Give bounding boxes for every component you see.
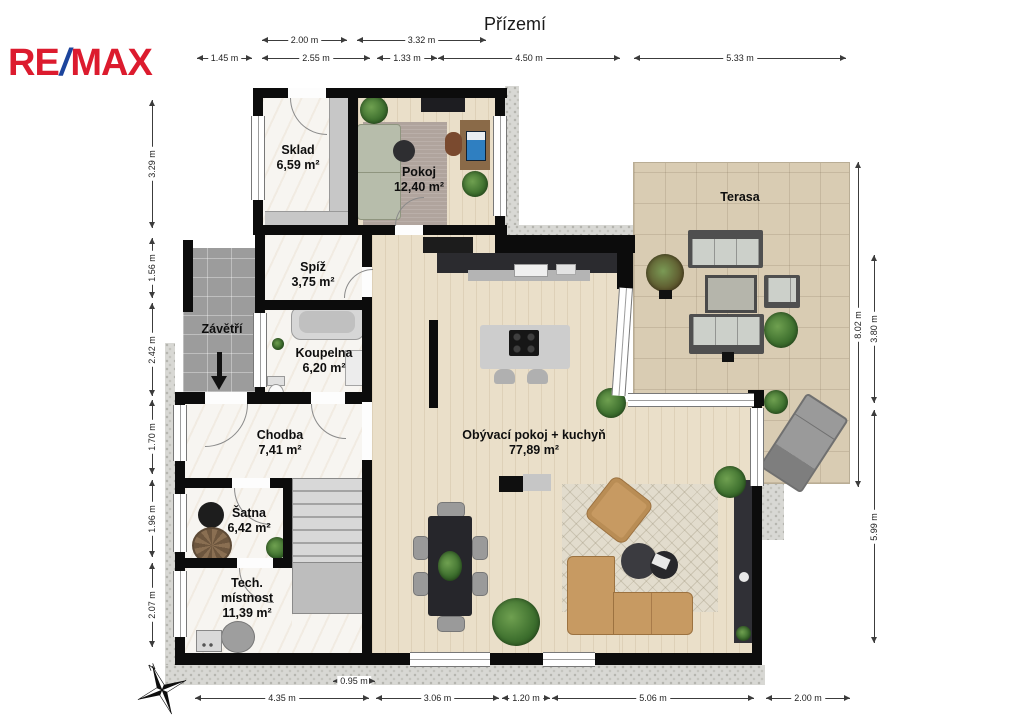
window xyxy=(410,652,490,667)
wall-segment xyxy=(247,392,311,404)
dining-chair xyxy=(437,616,465,632)
staircase xyxy=(292,478,364,564)
wall-segment xyxy=(362,235,372,267)
plant xyxy=(462,171,488,197)
wall-segment xyxy=(595,653,762,665)
plant xyxy=(764,390,788,414)
logo-max: MAX xyxy=(70,42,151,84)
wall-segment xyxy=(263,300,372,310)
dimension: 1.45 m xyxy=(197,52,252,64)
kitchen-tall-cabinet xyxy=(423,237,473,253)
washing-machine xyxy=(196,630,222,652)
dining-chair xyxy=(413,572,429,596)
floor-under-stairs xyxy=(292,612,362,653)
wall-segment xyxy=(617,253,633,289)
wall-segment xyxy=(253,88,288,98)
dimension: 1.96 m xyxy=(146,480,158,557)
outdoor-coffee-table xyxy=(705,275,757,313)
window-glass-wall xyxy=(628,393,754,407)
tv-cabinet xyxy=(421,96,465,112)
window xyxy=(173,494,187,552)
bar-stool xyxy=(494,369,515,384)
dimension: 5.99 m xyxy=(868,410,880,643)
plant xyxy=(438,551,462,581)
dimension: 1.56 m xyxy=(146,238,158,298)
entrance-arrow-icon xyxy=(217,352,222,376)
kitchen-sink xyxy=(514,264,548,277)
wall-segment xyxy=(183,240,193,312)
wall-segment xyxy=(495,235,635,253)
dimension: 8.02 m xyxy=(852,162,864,487)
window xyxy=(173,571,187,637)
bathtub-basin xyxy=(299,311,355,333)
dimension: 2.00 m xyxy=(262,34,347,46)
wall-segment xyxy=(348,98,358,225)
office-chair xyxy=(445,132,462,156)
outdoor-armchair xyxy=(764,275,800,308)
room-label-sklad: Sklad6,59 m² xyxy=(276,143,319,173)
shelving xyxy=(329,98,349,215)
logo-re: RE xyxy=(8,42,59,84)
gravel-strip xyxy=(507,225,635,235)
sofa-chaise xyxy=(567,556,615,635)
door-opening xyxy=(395,225,423,235)
pouf xyxy=(198,502,224,528)
plant xyxy=(360,96,388,124)
door-opening xyxy=(232,478,270,488)
door-opening xyxy=(288,88,326,98)
window xyxy=(543,652,595,667)
tv-media-wall xyxy=(734,480,754,643)
dimension: 3.06 m xyxy=(376,692,499,704)
dimension: 2.00 m xyxy=(766,692,850,704)
room-label-tech-mistnost: Tech. místnost11,39 m² xyxy=(208,576,286,621)
gravel-strip xyxy=(165,665,765,685)
room-label-koupelna: Koupelna6,20 m² xyxy=(296,346,353,376)
room-label-chodba: Chodba7,41 m² xyxy=(257,428,304,458)
wall-segment xyxy=(175,478,232,488)
room-label-spiz: Spíž3,75 m² xyxy=(291,260,334,290)
dimension: 5.06 m xyxy=(552,692,754,704)
wood-storage xyxy=(523,474,551,491)
dimension: 1.70 m xyxy=(146,400,158,474)
wall-segment xyxy=(362,297,372,402)
bar-stool xyxy=(527,369,548,384)
tree-pot xyxy=(659,290,672,299)
door-opening xyxy=(237,558,273,568)
plant xyxy=(764,312,798,348)
plant xyxy=(272,338,284,350)
remax-logo: RE/MAX xyxy=(8,44,152,82)
wall-segment xyxy=(175,653,410,665)
dimension: 2.07 m xyxy=(146,563,158,647)
dining-chair xyxy=(472,572,488,596)
gravel-strip xyxy=(505,86,519,235)
outdoor-sofa xyxy=(688,230,763,268)
room-opening xyxy=(362,402,372,460)
plant xyxy=(492,598,540,646)
plant xyxy=(714,466,746,498)
wall-segment xyxy=(253,225,395,235)
cooktop xyxy=(509,330,539,356)
cutting-board xyxy=(556,264,576,275)
door-opening xyxy=(311,392,345,404)
terrace-tree xyxy=(646,254,684,292)
dimension: 0.95 m xyxy=(333,675,375,687)
fireplace-stove xyxy=(499,476,523,492)
room-label-satna: Šatna6,42 m² xyxy=(227,506,270,536)
dining-chair xyxy=(413,536,429,560)
dimension: 2.42 m xyxy=(146,303,158,396)
dimension: 3.32 m xyxy=(357,34,486,46)
door-opening xyxy=(205,392,247,404)
window xyxy=(251,116,265,200)
dimension: 4.35 m xyxy=(195,692,369,704)
room-label-pokoj: Pokoj12,40 m² xyxy=(394,165,444,195)
wall-segment xyxy=(326,88,507,98)
wall-stub xyxy=(429,320,438,408)
dimension: 1.20 m xyxy=(502,692,550,704)
wall-segment xyxy=(490,653,543,665)
dimension: 1.33 m xyxy=(377,52,437,64)
window xyxy=(493,116,507,216)
boiler xyxy=(221,621,255,653)
plant xyxy=(736,626,751,641)
dimension: 3.80 m xyxy=(868,255,880,403)
wall-segment xyxy=(423,225,507,235)
staircase-landing xyxy=(292,562,364,614)
side-table xyxy=(393,140,415,162)
dimension: 5.33 m xyxy=(634,52,846,64)
dimension: 3.29 m xyxy=(146,100,158,228)
logo-slash: / xyxy=(59,42,71,84)
planter-pot xyxy=(722,352,734,362)
wall-segment xyxy=(273,558,292,568)
room-label-obyvaci-pokoj: Obývací pokoj + kuchyň77,89 m² xyxy=(462,428,605,458)
entrance-arrow-icon xyxy=(211,376,227,390)
wall-segment xyxy=(362,460,372,663)
tv-dot xyxy=(739,572,749,582)
window xyxy=(750,408,764,486)
window xyxy=(173,405,187,461)
room-label-zavetri: Závětří xyxy=(202,322,243,337)
plan-title: Přízemí xyxy=(430,14,600,35)
sofa xyxy=(613,592,693,635)
outdoor-sofa xyxy=(689,314,764,354)
monitor xyxy=(466,131,486,161)
wall-segment xyxy=(283,478,292,568)
floor-plan-page: RE/MAX Přízemí xyxy=(0,0,1024,723)
room-label-terasa: Terasa xyxy=(720,190,759,205)
dimension: 4.50 m xyxy=(438,52,620,64)
wall-segment xyxy=(175,558,237,568)
dimension: 2.55 m xyxy=(262,52,370,64)
dining-chair xyxy=(472,536,488,560)
window xyxy=(253,313,267,387)
